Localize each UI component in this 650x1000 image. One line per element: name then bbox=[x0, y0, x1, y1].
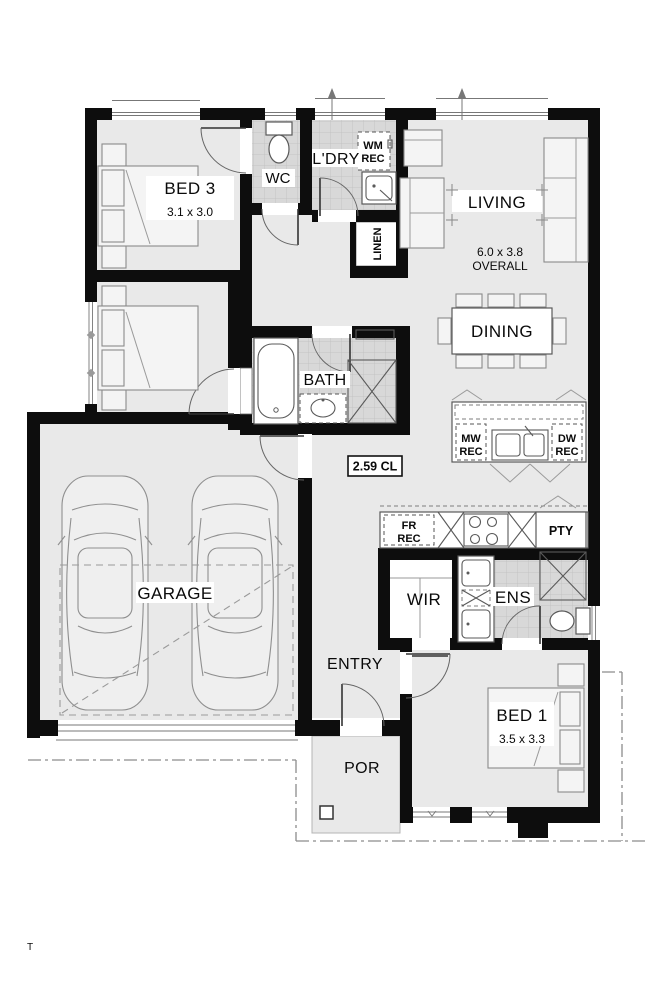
fr-rec-line1: FR bbox=[402, 520, 417, 532]
bed3-dims: 3.1 x 3.0 bbox=[167, 205, 213, 219]
wm-rec-line1: WM bbox=[363, 140, 383, 152]
living-armchair bbox=[404, 130, 442, 166]
dining-label: DINING bbox=[471, 322, 533, 341]
ceiling-height-box: 2.59 CL bbox=[348, 456, 402, 476]
bed1-label: BED 1 bbox=[496, 706, 547, 725]
laundry-window bbox=[315, 99, 385, 121]
porch-label: POR bbox=[344, 760, 380, 777]
porch-post bbox=[320, 806, 333, 819]
bed2-window bbox=[85, 302, 97, 404]
wir-label: WIR bbox=[407, 590, 441, 609]
linen-label: LINEN bbox=[372, 227, 384, 260]
wc-label: WC bbox=[266, 170, 291, 187]
bed3-label: BED 3 bbox=[164, 179, 215, 198]
pantry-label: PTY bbox=[549, 524, 574, 538]
ens-vanity-icon bbox=[458, 556, 494, 642]
floor-plan-page: BED 3 3.1 x 3.0 WC L'DRY WM REC LINEN LI… bbox=[0, 0, 650, 1000]
living-overall: OVERALL bbox=[472, 259, 528, 273]
laundry-trough-icon bbox=[362, 172, 396, 204]
garage-door-opening bbox=[56, 720, 298, 740]
ceiling-height-label: 2.59 CL bbox=[353, 460, 398, 474]
bath-vanity-icon bbox=[300, 394, 346, 423]
mw-rec-line1: MW bbox=[461, 433, 481, 445]
wc-window bbox=[265, 108, 296, 120]
dw-rec-line1: DW bbox=[558, 433, 577, 445]
bath-label: BATH bbox=[303, 372, 346, 389]
living-window bbox=[436, 99, 548, 121]
bed1-dims: 3.5 x 3.3 bbox=[499, 732, 545, 746]
living-label: LIVING bbox=[468, 193, 526, 212]
fr-rec-line2: REC bbox=[397, 533, 420, 545]
floor-plan-svg: BED 3 3.1 x 3.0 WC L'DRY WM REC LINEN LI… bbox=[0, 0, 650, 1000]
bed2-robe bbox=[240, 368, 252, 414]
watermark-text: T bbox=[27, 942, 33, 953]
living-sofa bbox=[544, 138, 588, 262]
entry-label: ENTRY bbox=[327, 656, 383, 673]
ens-label: ENS bbox=[495, 588, 531, 607]
living-loveseat bbox=[400, 178, 444, 248]
laundry-label: L'DRY bbox=[312, 151, 359, 168]
mw-rec-line2: REC bbox=[459, 446, 482, 458]
bed3-window bbox=[112, 101, 200, 121]
dw-rec-line2: REC bbox=[555, 446, 578, 458]
wm-rec-line2: REC bbox=[361, 153, 384, 165]
bathtub-icon bbox=[254, 338, 298, 424]
bed1-window-right bbox=[472, 807, 507, 823]
living-dims: 6.0 x 3.8 bbox=[477, 245, 523, 259]
garage-label: GARAGE bbox=[137, 584, 212, 603]
bed1-window-left bbox=[413, 807, 450, 823]
